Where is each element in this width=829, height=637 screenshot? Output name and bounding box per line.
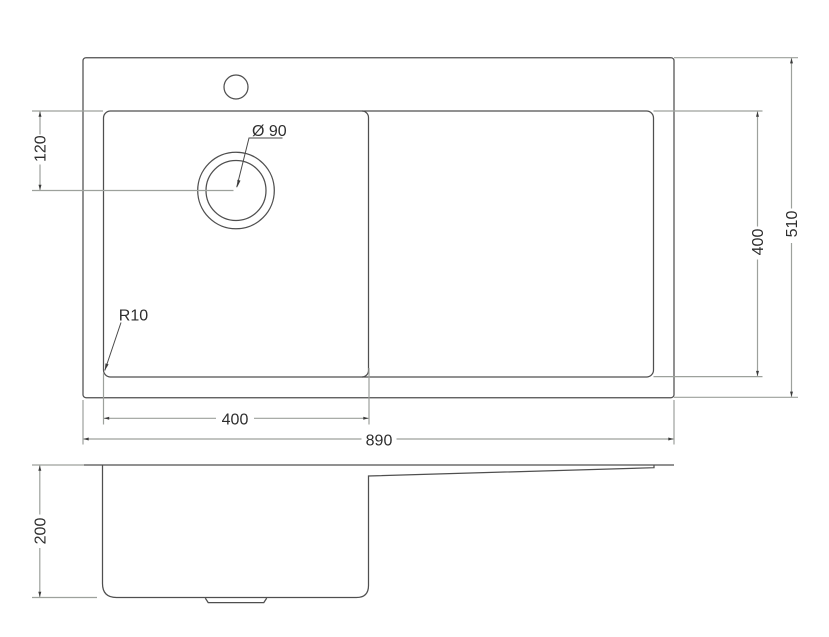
svg-text:Ø 90: Ø 90	[252, 123, 287, 140]
svg-text:120: 120	[33, 135, 50, 162]
svg-text:890: 890	[366, 432, 393, 449]
svg-text:R10: R10	[119, 307, 148, 324]
svg-text:510: 510	[784, 211, 801, 238]
svg-text:200: 200	[32, 518, 49, 545]
svg-text:400: 400	[750, 229, 767, 256]
svg-text:400: 400	[222, 412, 249, 429]
